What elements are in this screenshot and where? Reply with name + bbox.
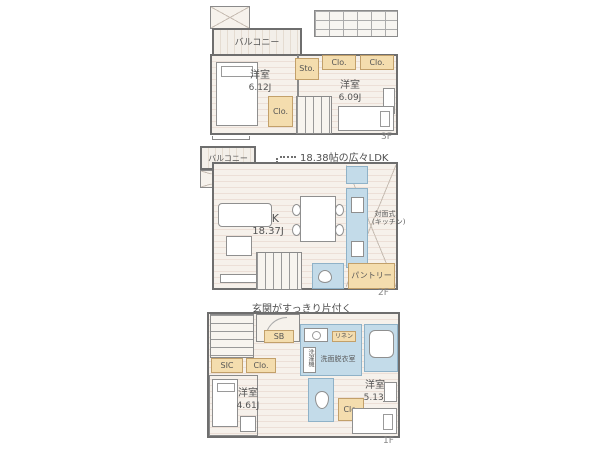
- toilet-icon: [318, 270, 332, 283]
- floor-label-1f: 1F: [383, 436, 394, 446]
- stairs-3f: [296, 96, 332, 134]
- floor-label-3f: 3F: [381, 132, 392, 142]
- stairs-2f: [256, 252, 302, 290]
- kitchen-cabinet-icon: [346, 166, 368, 184]
- floor-plan-image: バルコニー 洋室 6.12J Sto. Clo. Clo. 洋室 6.09J C…: [0, 0, 600, 450]
- dining-table-icon: [300, 196, 336, 242]
- kitchen-note-line2: (キッチン): [372, 218, 398, 226]
- closet-3f-c: Clo.: [268, 96, 293, 127]
- table-icon: [226, 236, 252, 256]
- linen-label: リネン: [335, 334, 353, 340]
- bedroom-1f-left-label: 洋室 4.61J: [226, 388, 270, 412]
- bedroom-3f-left-label: 洋室 6.12J: [232, 70, 288, 94]
- washroom-1f: リネン 洗濯機 洗面脱衣室: [300, 324, 362, 376]
- bedroom-3f-right-name: 洋室: [322, 80, 378, 93]
- sic-closet: SIC: [211, 358, 243, 373]
- linen-closet: リネン: [332, 331, 356, 342]
- washbasin-icon: [304, 328, 328, 342]
- pantry-label: パントリー: [351, 272, 391, 280]
- shoe-box-label: SB: [274, 333, 285, 341]
- scale-bar: [212, 136, 250, 140]
- kitchen-counter-icon: [346, 188, 368, 268]
- desk-icon: [240, 416, 256, 432]
- toilet-icon: [315, 391, 329, 409]
- chair-icon: [292, 224, 301, 236]
- closet-3f-a-label: Clo.: [331, 59, 346, 67]
- sic-label: SIC: [220, 362, 233, 370]
- closet-3f-b-label: Clo.: [369, 59, 384, 67]
- pillow-icon: [383, 414, 393, 430]
- closet-3f-a: Clo.: [322, 55, 356, 70]
- roof-section-3f: [210, 6, 250, 29]
- basin-bowl-icon: [312, 331, 321, 340]
- laundry-label: 洗濯機: [306, 349, 313, 367]
- floor-label-2f: 2F: [378, 288, 389, 298]
- bedroom-1f-left-size: 4.61J: [226, 401, 270, 412]
- desk-icon: [384, 382, 397, 402]
- chair-icon: [292, 204, 301, 216]
- closet-3f-b: Clo.: [360, 55, 394, 70]
- chair-icon: [335, 204, 344, 216]
- bathtub-icon: [369, 330, 394, 358]
- bedroom-1f-left-name: 洋室: [226, 388, 270, 401]
- hall-closet-label: Clo.: [253, 362, 268, 370]
- kitchen-note: 対面式 (キッチン): [372, 210, 398, 226]
- bedroom-3f-left-size: 6.12J: [232, 83, 288, 94]
- hall-closet: Clo.: [246, 358, 276, 373]
- storage-3f: Sto.: [295, 58, 319, 80]
- storage-3f-label: Sto.: [299, 65, 315, 73]
- chair-icon: [335, 224, 344, 236]
- bed-icon: [352, 408, 397, 434]
- bedroom-3f-left-name: 洋室: [232, 70, 288, 83]
- pillow-icon: [380, 111, 390, 127]
- annotation-dots-h: [280, 156, 296, 158]
- bathroom-1f: [364, 324, 398, 372]
- toilet-room-2f: [312, 263, 344, 289]
- closet-3f-c-label: Clo.: [273, 108, 288, 116]
- toilet-room-1f: [308, 378, 334, 422]
- balcony-3f: バルコニー: [212, 28, 302, 56]
- stove-icon: [351, 241, 364, 257]
- kitchen-note-line1: 対面式: [372, 210, 398, 218]
- roof-tiles-3f: [314, 10, 398, 37]
- sink-icon: [351, 197, 364, 213]
- bed-icon: [338, 106, 394, 131]
- washroom-label: 洗面脱衣室: [315, 355, 361, 363]
- sofa-icon: [218, 203, 272, 227]
- balcony-3f-label: バルコニー: [214, 38, 300, 49]
- shoe-box-1f: SB: [264, 330, 294, 343]
- pantry-2f: パントリー: [348, 263, 395, 289]
- stairs-1f: [210, 314, 254, 358]
